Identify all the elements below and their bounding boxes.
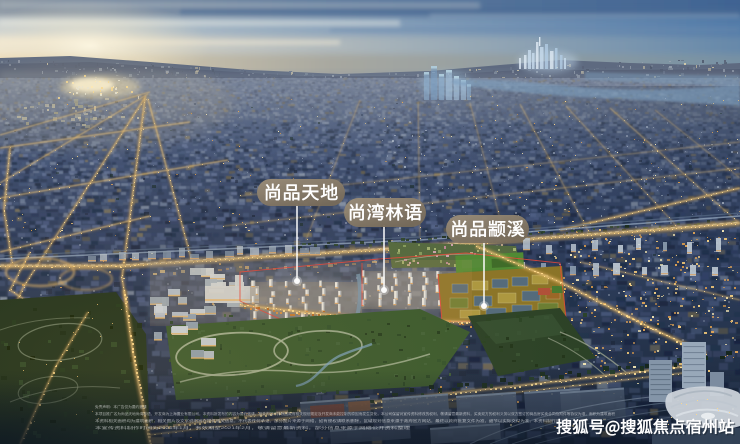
svg-text:免责声明：本广告仅为要约邀请: 免责声明：本广告仅为要约邀请 [95, 404, 147, 409]
svg-text:本宣传资料制作时间为2021年1月，有效期至2021年2月，: 本宣传资料制作时间为2021年1月，有效期至2021年2月，敬请留意最新资料，部… [95, 425, 411, 430]
svg-text:本资料相关面积均为建筑面积，相关图片及文字说明旨在提供相关信: 本资料相关面积均为建筑面积，相关图片及文字说明旨在提供相关信息，不代表任何承诺，… [95, 418, 565, 423]
svg-text:本项目推广名为尚品天地尚湾林语，开发商为上海置业有限公司，本: 本项目推广名为尚品天地尚湾林语，开发商为上海置业有限公司，本资料所发布的内容为要… [95, 411, 615, 416]
